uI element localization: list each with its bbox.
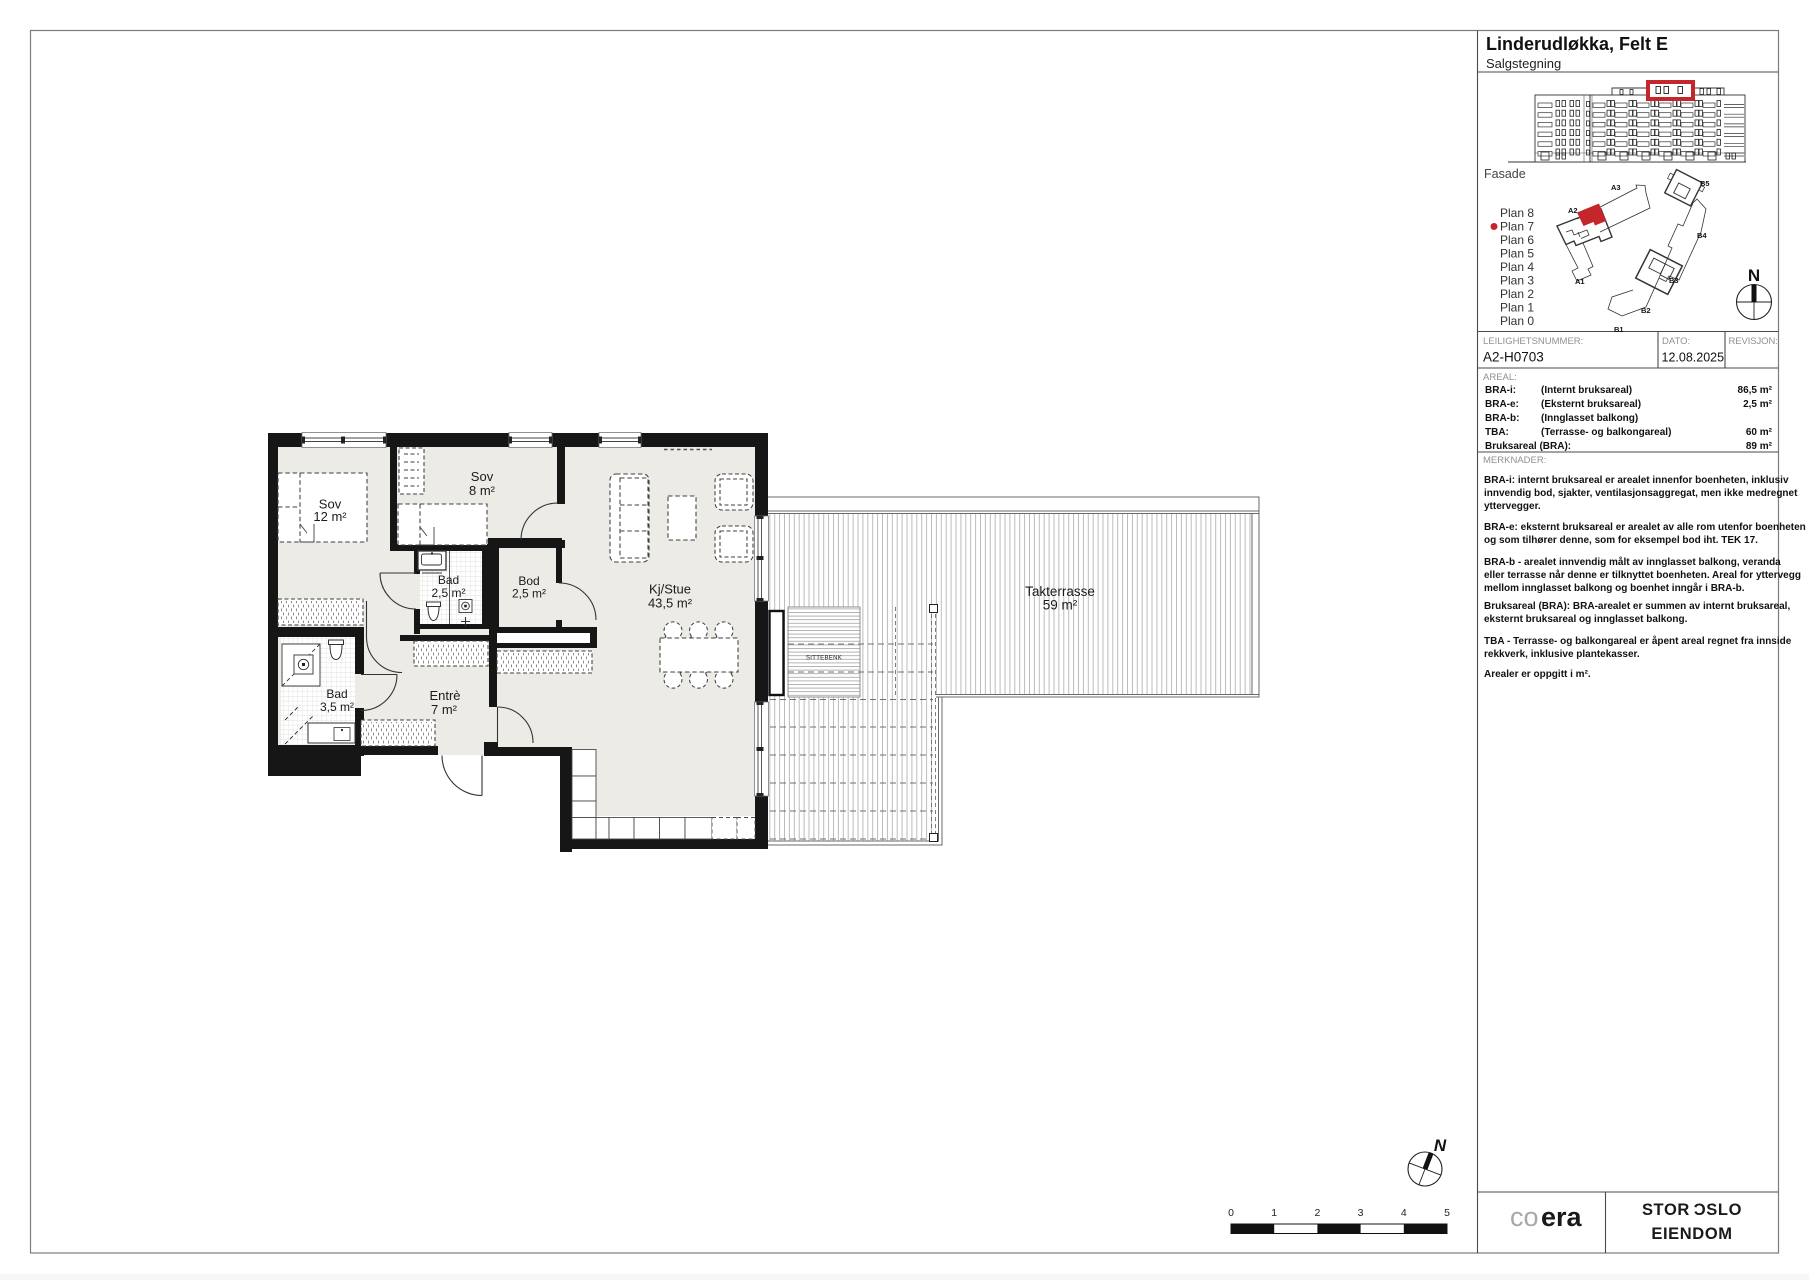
svg-text:(Terrasse- og balkongareal): (Terrasse- og balkongareal) xyxy=(1541,427,1671,438)
svg-text:mellom innglasset balkong og b: mellom innglasset balkong og boenhet inn… xyxy=(1484,582,1745,594)
svg-text:4: 4 xyxy=(1401,1207,1407,1219)
svg-text:B5: B5 xyxy=(1700,179,1710,188)
svg-text:2,5 m²: 2,5 m² xyxy=(431,586,465,600)
svg-text:Plan 2: Plan 2 xyxy=(1500,287,1534,301)
svg-text:Salgstegning: Salgstegning xyxy=(1486,56,1561,71)
svg-text:Plan 8: Plan 8 xyxy=(1500,206,1534,220)
svg-text:Bad: Bad xyxy=(326,687,347,701)
svg-text:A1: A1 xyxy=(1575,277,1585,286)
svg-text:B4: B4 xyxy=(1697,231,1707,240)
svg-text:innvendig bod, sjakter, ventil: innvendig bod, sjakter, ventilasjonsaggr… xyxy=(1484,488,1798,499)
svg-text:86,5 m²: 86,5 m² xyxy=(1738,385,1773,396)
svg-text:12 m²: 12 m² xyxy=(313,509,347,524)
svg-text:59 m²: 59 m² xyxy=(1043,598,1078,613)
svg-text:og som tilhører denne, som for: og som tilhører denne, som for eksempel … xyxy=(1484,535,1758,546)
svg-text:MERKNADER:: MERKNADER: xyxy=(1483,455,1546,466)
svg-text:(Internt bruksareal): (Internt bruksareal) xyxy=(1541,385,1632,396)
svg-text:B2: B2 xyxy=(1641,306,1651,315)
svg-text:DATO:: DATO: xyxy=(1662,336,1690,347)
svg-text:N: N xyxy=(1434,1136,1447,1155)
svg-text:Plan 0: Plan 0 xyxy=(1500,314,1534,328)
svg-text:TBA:: TBA: xyxy=(1485,427,1509,438)
svg-text:Kj/Stue: Kj/Stue xyxy=(649,582,691,597)
svg-text:5: 5 xyxy=(1444,1207,1450,1219)
svg-text:SITTEBENK: SITTEBENK xyxy=(806,656,842,662)
svg-text:(Innglasset balkong): (Innglasset balkong) xyxy=(1541,413,1638,424)
svg-text:Bruksareal (BRA):: Bruksareal (BRA): xyxy=(1485,441,1571,452)
svg-text:BRA-i: internt bruksareal er a: BRA-i: internt bruksareal er arealet inn… xyxy=(1484,475,1789,486)
svg-text:Bruksareal (BRA): BRA-arealet: Bruksareal (BRA): BRA-arealet er summen … xyxy=(1484,601,1790,612)
svg-text:N: N xyxy=(1748,266,1760,285)
svg-text:1: 1 xyxy=(1271,1207,1277,1219)
svg-text:BRA-e:: BRA-e: xyxy=(1485,399,1519,410)
svg-text:Sov: Sov xyxy=(471,469,494,484)
svg-text:Fasade: Fasade xyxy=(1484,167,1526,181)
svg-text:eksternt bruksareal og innglas: eksternt bruksareal og innglasset balkon… xyxy=(1484,614,1688,625)
svg-text:rekkverk, inklusive plantekass: rekkverk, inklusive plantekasser. xyxy=(1484,649,1640,660)
svg-text:Plan 1: Plan 1 xyxy=(1500,301,1534,315)
svg-text:B3: B3 xyxy=(1669,276,1679,285)
svg-text:7 m²: 7 m² xyxy=(431,702,458,717)
svg-text:yttervegger.: yttervegger. xyxy=(1484,501,1541,512)
svg-text:3,5 m²: 3,5 m² xyxy=(320,700,354,714)
svg-text:12.08.2025: 12.08.2025 xyxy=(1662,351,1725,365)
svg-text:2,5 m²: 2,5 m² xyxy=(1743,399,1773,410)
svg-text:STOR ƆSLO: STOR ƆSLO xyxy=(1642,1201,1742,1219)
svg-text:Plan 4: Plan 4 xyxy=(1500,260,1534,274)
svg-text:3: 3 xyxy=(1358,1207,1364,1219)
svg-text:Plan 6: Plan 6 xyxy=(1500,233,1534,247)
svg-text:Entrè: Entrè xyxy=(429,688,460,703)
svg-text:Plan 7: Plan 7 xyxy=(1500,220,1534,234)
svg-text:REVISJON:: REVISJON: xyxy=(1729,336,1778,347)
svg-text:(Eksternt bruksareal): (Eksternt bruksareal) xyxy=(1541,399,1641,410)
svg-text:Bad: Bad xyxy=(438,573,459,587)
svg-text:Arealer er oppgitt i m².: Arealer er oppgitt i m². xyxy=(1484,669,1591,680)
svg-text:era: era xyxy=(1541,1202,1583,1232)
svg-text:LEILIGHETSNUMMER:: LEILIGHETSNUMMER: xyxy=(1483,336,1583,347)
svg-text:eller terrasse når denne er ti: eller terrasse når denne er tilknyttet b… xyxy=(1484,569,1801,581)
svg-text:0: 0 xyxy=(1228,1207,1234,1219)
svg-text:A2: A2 xyxy=(1568,206,1578,215)
svg-text:Linderudløkka, Felt E: Linderudløkka, Felt E xyxy=(1486,34,1668,54)
svg-text:2: 2 xyxy=(1314,1207,1320,1219)
svg-text:BRA-i:: BRA-i: xyxy=(1485,385,1516,396)
svg-text:Plan 5: Plan 5 xyxy=(1500,247,1534,261)
svg-text:A2-H0703: A2-H0703 xyxy=(1483,350,1544,365)
svg-text:8 m²: 8 m² xyxy=(469,483,496,498)
svg-text:BRA-b:: BRA-b: xyxy=(1485,413,1519,424)
svg-text:co: co xyxy=(1510,1202,1539,1232)
svg-text:BRA-b - arealet innvendig målt: BRA-b - arealet innvendig målt av inngla… xyxy=(1484,556,1781,568)
svg-text:BRA-e: eksternt bruksareal er: BRA-e: eksternt bruksareal er arealet av… xyxy=(1484,522,1806,533)
svg-text:B1: B1 xyxy=(1614,325,1624,334)
svg-text:EIENDOM: EIENDOM xyxy=(1651,1225,1732,1243)
svg-text:89 m²: 89 m² xyxy=(1746,441,1773,452)
svg-text:TBA - Terrasse- og balkongarea: TBA - Terrasse- og balkongareal er åpent… xyxy=(1484,635,1792,647)
svg-text:60 m²: 60 m² xyxy=(1746,427,1773,438)
svg-text:2,5 m²: 2,5 m² xyxy=(512,587,546,601)
svg-text:A3: A3 xyxy=(1611,183,1621,192)
svg-text:43,5 m²: 43,5 m² xyxy=(648,596,693,611)
svg-text:Plan 3: Plan 3 xyxy=(1500,274,1534,288)
svg-text:AREAL:: AREAL: xyxy=(1483,372,1517,383)
